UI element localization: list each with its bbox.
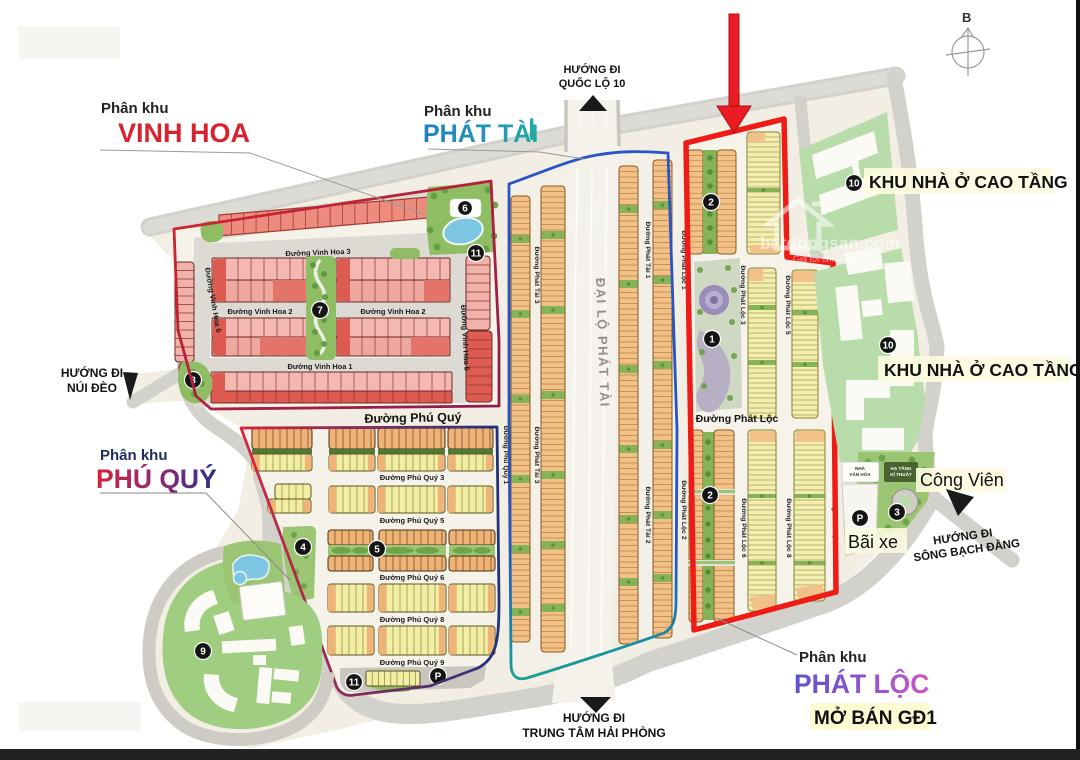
svg-text:B: B — [962, 10, 971, 25]
svg-text:Đường Vinh Hoa 2: Đường Vinh Hoa 2 — [227, 307, 292, 316]
svg-text:KHU NHÀ Ở CAO TẦNG: KHU NHÀ Ở CAO TẦNG — [884, 359, 1080, 380]
svg-text:KĨ THUẬT: KĨ THUẬT — [890, 471, 912, 477]
svg-text:10: 10 — [882, 340, 894, 351]
svg-text:Đường Phát Tài 2: Đường Phát Tài 2 — [644, 487, 651, 544]
svg-text:QUỐC LỘ 10: QUỐC LỘ 10 — [559, 76, 626, 90]
svg-text:2: 2 — [708, 197, 714, 208]
svg-text:HẠ TẦNG: HẠ TẦNG — [891, 465, 912, 471]
svg-text:Phân khu: Phân khu — [100, 447, 168, 464]
svg-text:3: 3 — [894, 507, 900, 518]
svg-text:1: 1 — [709, 334, 715, 345]
svg-text:P: P — [857, 513, 864, 524]
svg-text:MỞ BÁN GĐ1: MỞ BÁN GĐ1 — [814, 707, 937, 729]
svg-text:NÚI ĐÈO: NÚI ĐÈO — [67, 380, 117, 395]
svg-text:KHU NHÀ Ở CAO TẦNG: KHU NHÀ Ở CAO TẦNG — [869, 171, 1068, 192]
svg-text:Đường Phú Quý 9: Đường Phú Quý 9 — [380, 658, 445, 667]
svg-text:Đường Phát Lộc 2: Đường Phát Lộc 2 — [680, 480, 687, 539]
svg-text:10: 10 — [848, 178, 860, 189]
svg-text:Đường Phát Tài 3: Đường Phát Tài 3 — [533, 427, 540, 484]
svg-text:Đường Phát Lộc 5: Đường Phát Lộc 5 — [784, 275, 791, 334]
svg-text:5: 5 — [374, 544, 380, 555]
svg-text:VINH HOA: VINH HOA — [118, 118, 250, 148]
svg-text:VĂN HÓA: VĂN HÓA — [849, 470, 871, 477]
svg-text:HƯỚNG ĐI: HƯỚNG ĐI — [61, 365, 123, 380]
svg-text:Bãi xe: Bãi xe — [848, 532, 898, 552]
svg-text:11: 11 — [349, 677, 360, 688]
svg-text:Phân khu: Phân khu — [101, 100, 169, 117]
svg-text:PHÁT LỘC: PHÁT LỘC — [794, 669, 929, 699]
svg-text:7: 7 — [317, 305, 323, 316]
svg-text:4: 4 — [300, 542, 306, 553]
svg-text:Đường Phú Quý 6: Đường Phú Quý 6 — [380, 573, 445, 582]
svg-text:Đường Phát Tài 3: Đường Phát Tài 3 — [533, 247, 540, 304]
svg-text:Đường Vinh Hoa 1: Đường Vinh Hoa 1 — [287, 362, 352, 371]
svg-text:Phân khu: Phân khu — [799, 649, 867, 666]
svg-text:9: 9 — [200, 646, 206, 657]
svg-text:PHÚ QUÝ: PHÚ QUÝ — [96, 464, 217, 494]
svg-text:6: 6 — [462, 203, 468, 214]
svg-text:Phân khu: Phân khu — [424, 103, 492, 120]
svg-text:Đường Phát Lộc 6: Đường Phát Lộc 6 — [740, 498, 747, 557]
svg-text:Giá tốt chính chủ: Giá tốt chính chủ — [793, 254, 861, 264]
svg-text:2: 2 — [707, 490, 713, 501]
svg-text:Đường Phú Quý 3: Đường Phú Quý 3 — [380, 473, 445, 482]
svg-text:HƯỚNG ĐI: HƯỚNG ĐI — [563, 710, 625, 725]
svg-text:Công Viên: Công Viên — [920, 470, 1004, 490]
svg-text:PHÁT TÀI: PHÁT TÀI — [423, 119, 538, 148]
svg-text:11: 11 — [471, 248, 482, 259]
svg-text:Đường Phát Lộc 8: Đường Phát Lộc 8 — [785, 498, 792, 557]
svg-text:Đường Phát Lộc 3: Đường Phát Lộc 3 — [739, 265, 746, 324]
svg-text:Đường Phú Quý 5: Đường Phú Quý 5 — [380, 516, 445, 525]
svg-text:Đường Vinh Hoa 2: Đường Vinh Hoa 2 — [360, 307, 425, 316]
svg-text:batdongsan.com: batdongsan.com — [760, 233, 900, 253]
svg-text:HƯỚNG ĐI: HƯỚNG ĐI — [563, 63, 620, 76]
svg-text:Đường Phú Quý 8: Đường Phú Quý 8 — [380, 615, 445, 624]
svg-text:NHÀ: NHÀ — [855, 465, 866, 471]
svg-text:TRUNG TÂM HẢI PHÒNG: TRUNG TÂM HẢI PHÒNG — [522, 725, 665, 740]
svg-text:Đường Phát Lộc: Đường Phát Lộc — [696, 413, 779, 425]
svg-text:Đường Phú Quý: Đường Phú Quý — [364, 410, 461, 426]
svg-text:Đường Phát Tài 1: Đường Phát Tài 1 — [644, 222, 651, 279]
